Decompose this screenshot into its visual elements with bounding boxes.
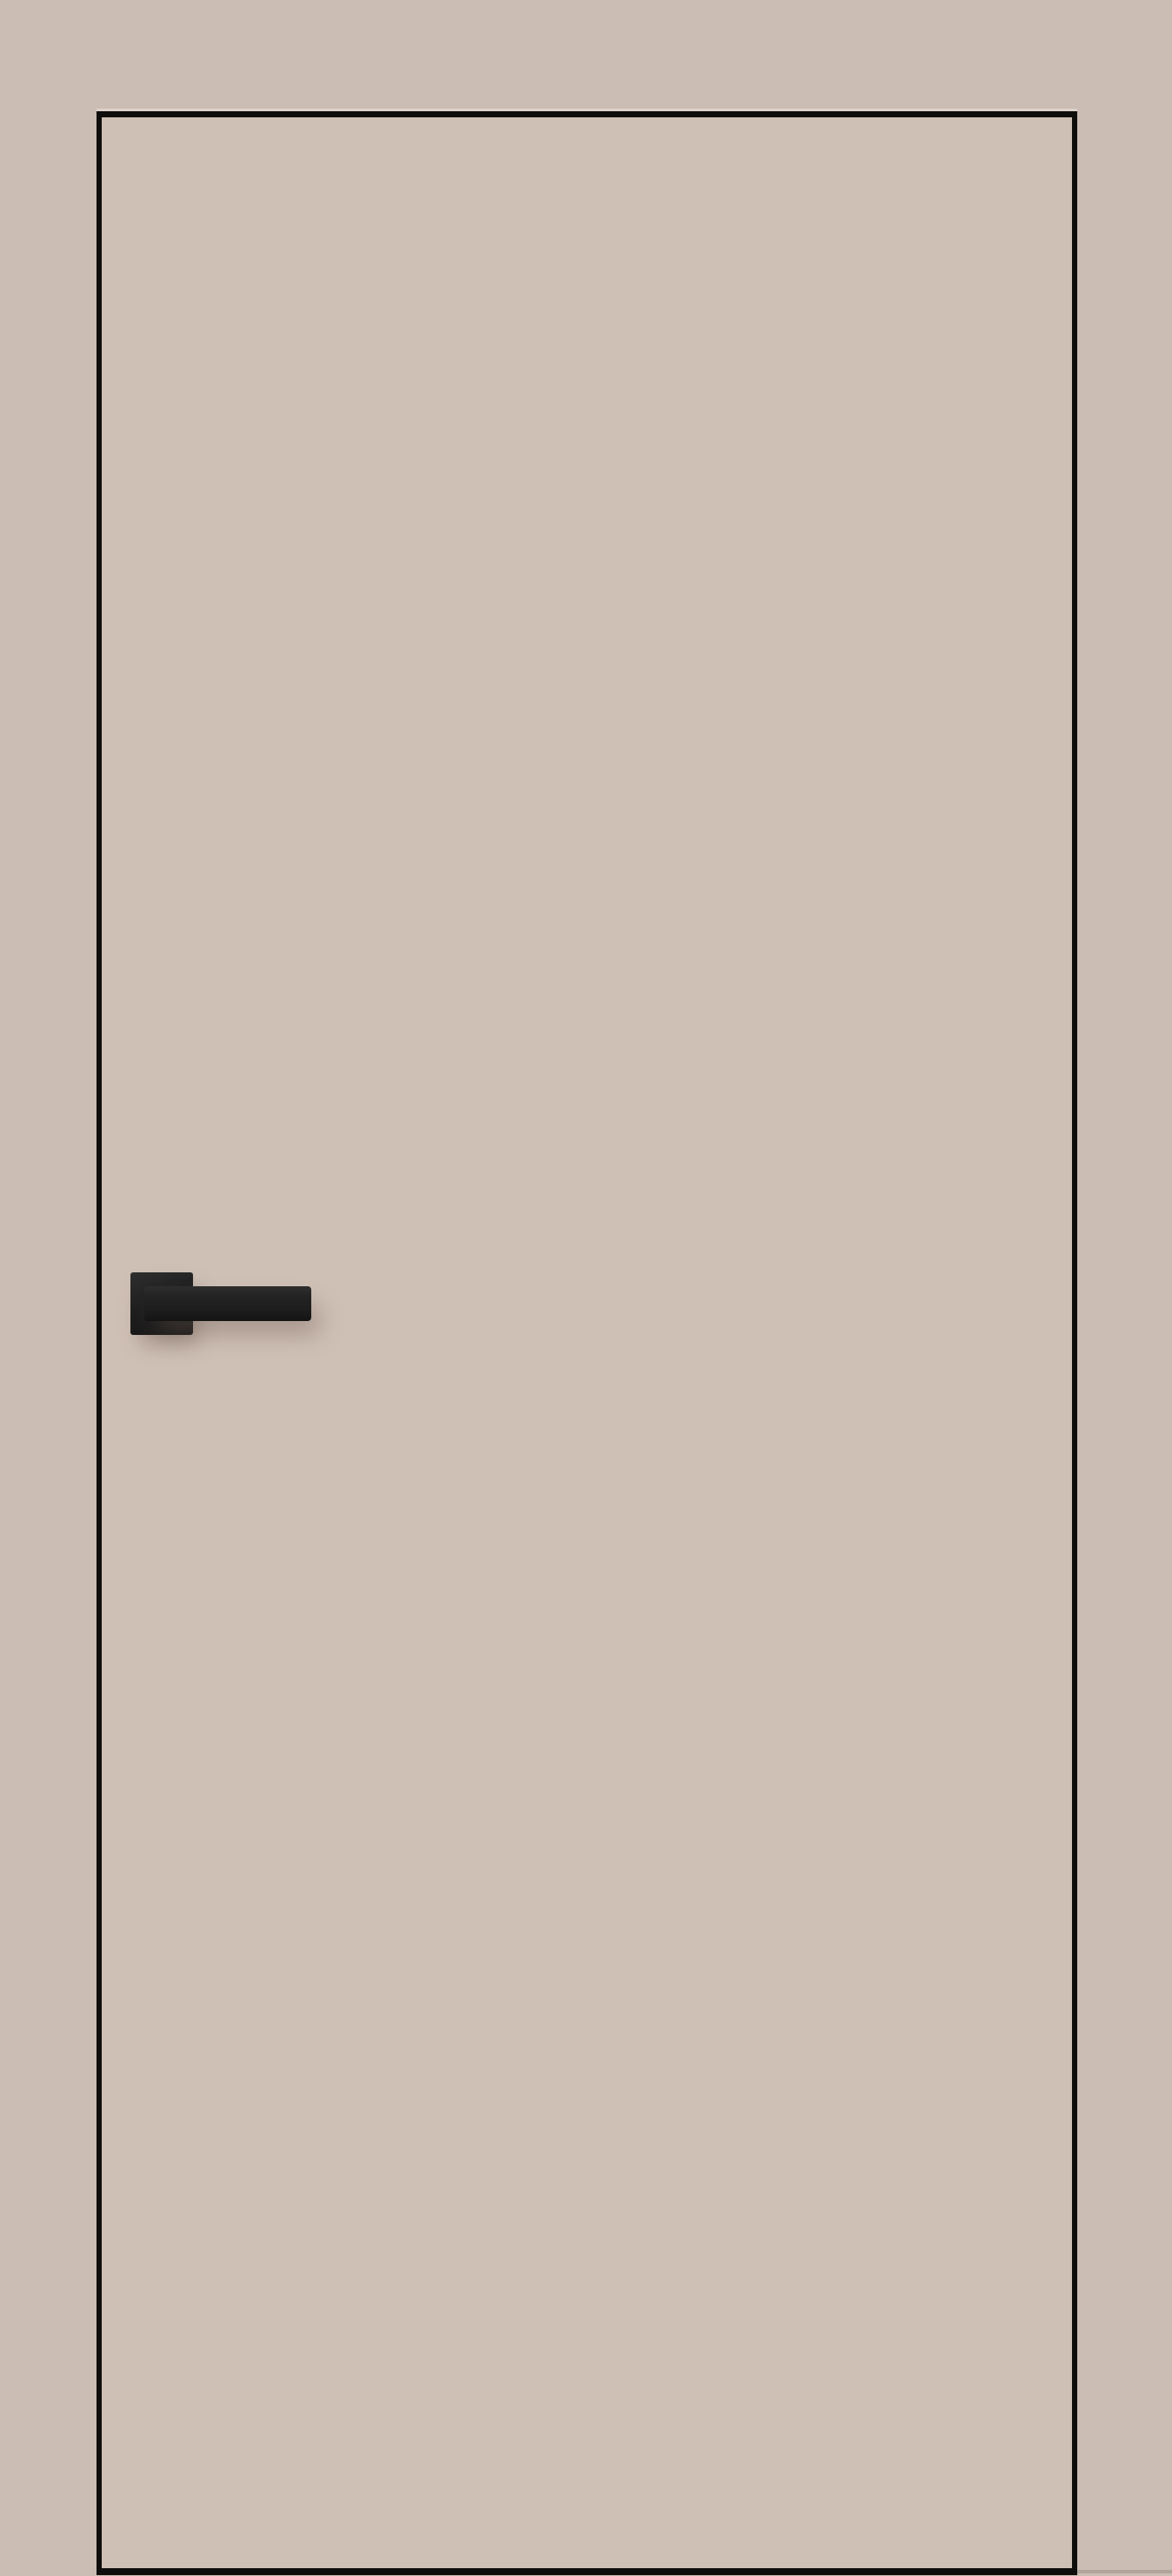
wall-background: { "scene": { "subject": "flush-interior-…	[0, 0, 1172, 2576]
floor-shadow-line	[1077, 2570, 1172, 2573]
door-leaf	[97, 111, 1077, 2575]
door-handle-lever	[144, 1286, 311, 1321]
